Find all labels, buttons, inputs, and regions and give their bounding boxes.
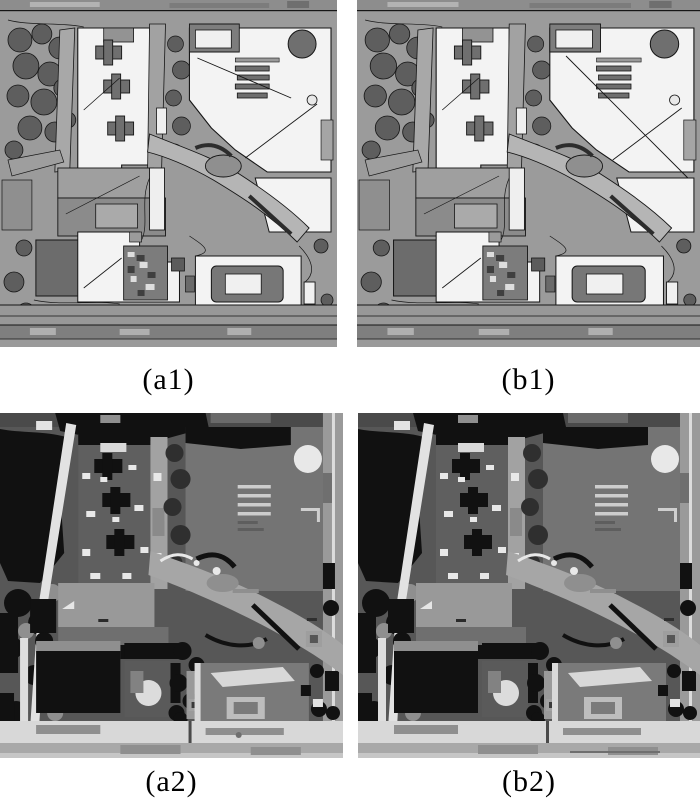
aerial-segmentation-overlay-image xyxy=(357,0,700,347)
panel-image-a2 xyxy=(0,413,343,758)
panel-image-b1 xyxy=(357,0,700,347)
panel-caption-b1: (b1) xyxy=(357,350,700,410)
aerial-segmentation-overlay-image xyxy=(0,0,337,347)
panel-caption-b2: (b2) xyxy=(358,760,700,804)
segmentation-label-map-image xyxy=(0,413,343,758)
panel-caption-a1: (a1) xyxy=(0,350,337,410)
panel-caption-a2: (a2) xyxy=(0,760,343,804)
figure-page: (a1) (b1) xyxy=(0,0,700,806)
panel-image-b2 xyxy=(358,413,700,758)
segmentation-label-map-image xyxy=(358,413,700,758)
panel-image-a1 xyxy=(0,0,337,347)
